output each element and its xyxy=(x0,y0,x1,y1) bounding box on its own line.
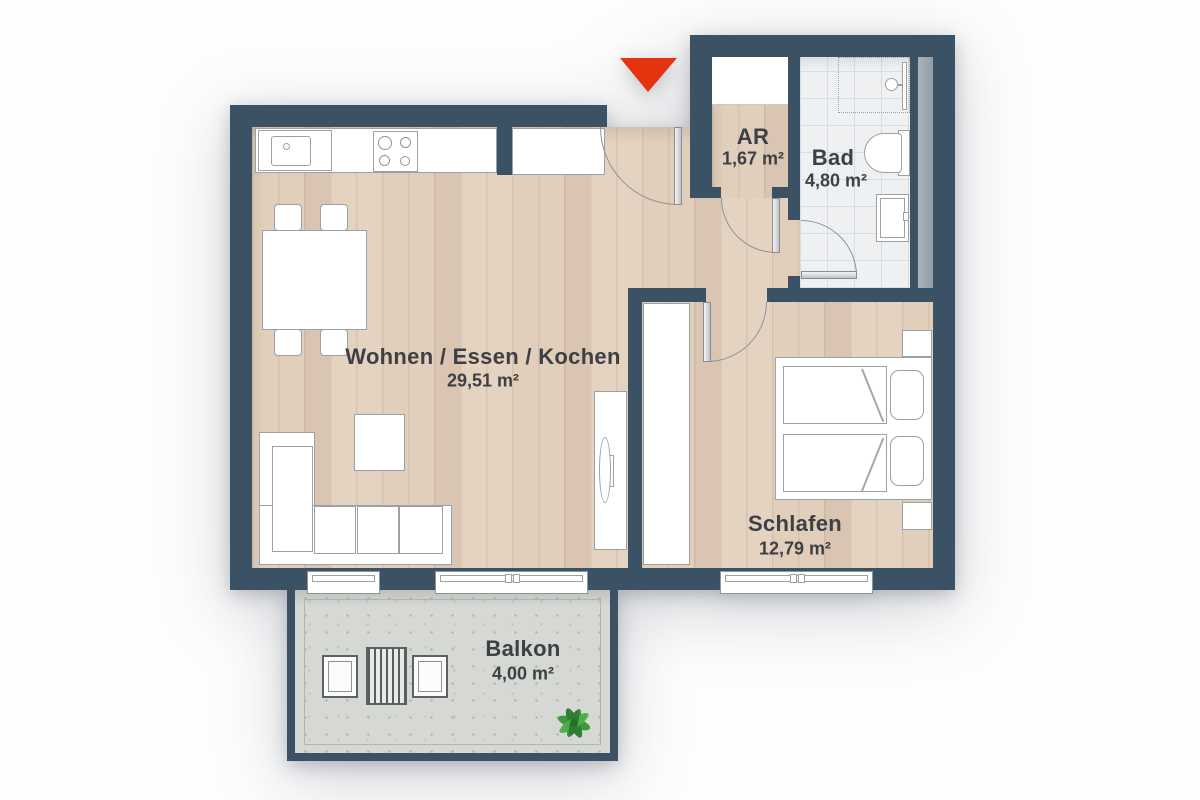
washbasin-inner xyxy=(880,198,905,238)
room-area-wohnen: 29,51 m² xyxy=(447,371,519,392)
kitchen-sink-icon xyxy=(271,136,311,166)
storage-door-leaf xyxy=(772,198,780,253)
room-area-balkon: 4,00 m² xyxy=(492,664,554,685)
dining-chair xyxy=(320,329,348,356)
wall-bath-left-upper xyxy=(788,57,800,220)
window-mullion xyxy=(513,574,520,583)
window-mullion xyxy=(790,574,797,583)
dining-chair xyxy=(320,204,348,231)
balcony-chair xyxy=(322,655,358,698)
pillow xyxy=(890,370,924,420)
balcony-wall-left xyxy=(287,590,295,761)
shower-rail xyxy=(902,62,907,110)
bath-door-leaf xyxy=(801,271,857,279)
window-living-2 xyxy=(435,571,588,594)
wall-bath-left-lower xyxy=(788,276,800,288)
room-label-schlafen: Schlafen xyxy=(748,511,842,537)
tv-icon xyxy=(599,437,611,503)
dining-chair xyxy=(274,204,302,231)
wardrobe xyxy=(643,303,690,565)
sofa-cushion xyxy=(272,446,313,552)
balcony-chair xyxy=(412,655,448,698)
window-living-1 xyxy=(307,571,380,594)
pillow xyxy=(890,436,924,486)
balcony-table xyxy=(366,647,407,705)
room-label-wohnen: Wohnen / Essen / Kochen xyxy=(345,344,620,370)
shower-head-icon xyxy=(885,78,898,91)
dining-table xyxy=(262,230,367,330)
wall-exterior-right xyxy=(933,35,955,590)
wall-exterior-top-living xyxy=(230,105,607,127)
floorplan-canvas: Wohnen / Essen / Kochen 29,51 m² Schlafe… xyxy=(0,0,1200,800)
room-label-balkon: Balkon xyxy=(485,636,560,662)
entry-door-leaf xyxy=(674,127,682,205)
window-frame xyxy=(312,575,375,582)
wall-exterior-top-block xyxy=(690,35,955,57)
stove-icon xyxy=(373,131,418,172)
nightstand xyxy=(902,330,932,357)
toilet-bowl xyxy=(864,133,902,173)
sofa-cushion xyxy=(399,506,443,554)
room-label-ar: AR xyxy=(737,124,769,150)
room-area-bad: 4,80 m² xyxy=(805,171,867,192)
wall-bath-shaft xyxy=(910,57,918,288)
sofa-cushion xyxy=(314,506,356,554)
burner-icon xyxy=(379,155,390,166)
window-mullion xyxy=(798,574,805,583)
burner-icon xyxy=(400,137,411,148)
installation-shaft xyxy=(918,57,933,288)
sofa-cushion xyxy=(357,506,399,554)
wall-kitchen-stub xyxy=(497,127,512,175)
wall-storage-bottom-left xyxy=(690,187,721,198)
balcony-wall-right xyxy=(610,590,618,761)
wall-bedroom-top-left xyxy=(628,288,706,302)
wall-bedroom-top-right xyxy=(767,288,933,302)
nightstand xyxy=(902,502,932,530)
dining-chair xyxy=(274,329,302,356)
bedroom-door-leaf xyxy=(703,302,711,362)
storage-shelf xyxy=(712,57,788,105)
burner-icon xyxy=(378,136,392,150)
window-bedroom xyxy=(720,571,873,594)
entry-cabinet xyxy=(512,128,605,175)
faucet-icon xyxy=(283,143,290,150)
wall-storage-left xyxy=(690,57,712,198)
entrance-arrow-down-icon xyxy=(620,58,677,92)
window-mullion xyxy=(505,574,512,583)
floorplan: Wohnen / Essen / Kochen 29,51 m² Schlafe… xyxy=(0,0,1200,800)
room-area-schlafen: 12,79 m² xyxy=(759,539,831,560)
coffee-table xyxy=(354,414,405,471)
room-label-bad: Bad xyxy=(812,145,854,171)
wall-exterior-left xyxy=(230,105,252,590)
burner-icon xyxy=(400,156,410,166)
chair-seat xyxy=(328,661,352,692)
balcony-wall-bottom xyxy=(287,753,618,761)
wall-partition-living-bedroom xyxy=(628,302,642,568)
washbasin-faucet xyxy=(903,212,909,221)
chair-seat xyxy=(418,661,442,692)
plant-icon xyxy=(540,690,604,752)
room-area-ar: 1,67 m² xyxy=(722,149,784,170)
